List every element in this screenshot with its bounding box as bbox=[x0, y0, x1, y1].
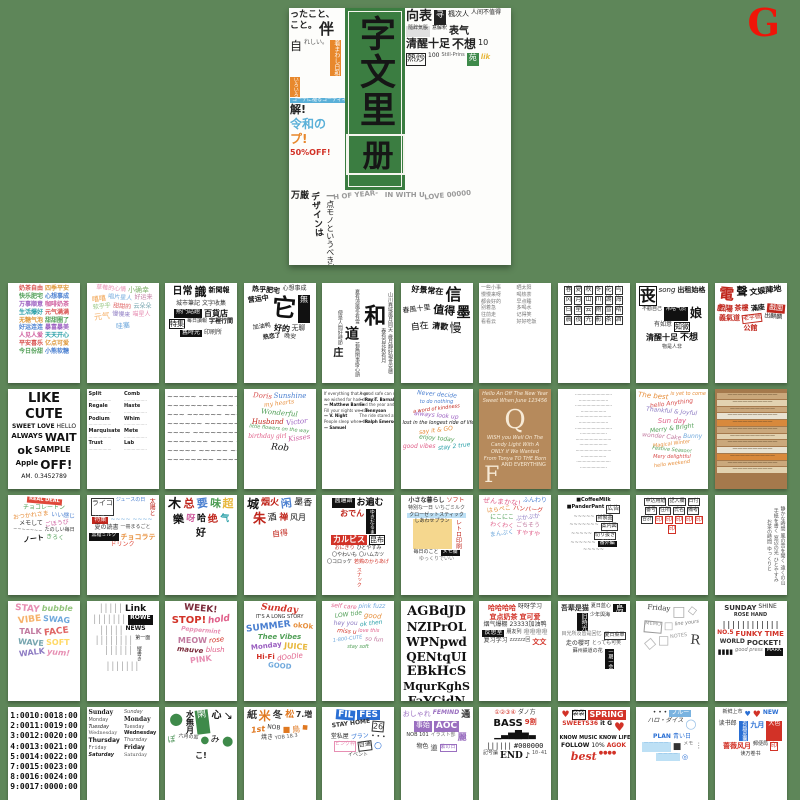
sticker-sheet-2-pastel-phrase-scatter: 草莓的心情小确幸嘻嘻唱片星人好运来软乎乎甜甜的云朵朵元气慢慢来喵星人哇塞 bbox=[87, 283, 159, 383]
text-fragment: POCKET! bbox=[747, 639, 781, 647]
sticker-sheet-5-vertical-script-calligraphy: 山川異域風月同天歲月靜好現世安穩和春有百花秋有月夏有涼風冬有雪道若無閑事掛心頭便… bbox=[322, 283, 394, 383]
text-fragment: デザインは bbox=[308, 192, 326, 265]
text-fragment: People sleep when the bbox=[324, 420, 357, 425]
sticker-sheet-13-cursive-scribble-rows: ~~~~~ ~~~~~~~ ~~~~~~~~~~~~ ~~~ ~~~~~~~~ … bbox=[165, 389, 237, 489]
text-fragment: 自 bbox=[290, 40, 302, 76]
text-fragment: FUNKY TIME bbox=[736, 630, 784, 638]
cover-collage-left: ったこと、こと。伴自れしい。着まわし日和いろいろコーデに褪るコーディネートを自由… bbox=[289, 8, 345, 190]
text-fragment: ーーーー bbox=[656, 753, 680, 761]
text-fragment: 記号論 bbox=[483, 751, 498, 761]
text-fragment: ゆっくりでいい bbox=[419, 557, 454, 563]
text-fragment: ····························· bbox=[560, 393, 628, 398]
text-fragment: 禅 bbox=[278, 512, 288, 528]
text-fragment: 川 bbox=[595, 296, 603, 305]
text-fragment: 人间不值得 bbox=[471, 10, 501, 25]
sticker-sheet-18-tiny-centered-lines: ········································… bbox=[558, 389, 630, 489]
text-fragment: —————————— bbox=[717, 393, 787, 399]
text-fragment: ······················· bbox=[560, 421, 628, 426]
text-fragment: 风月 bbox=[290, 513, 306, 528]
text-fragment: れしい。 bbox=[304, 40, 328, 76]
text-fragment: ~~~~~~ bbox=[570, 541, 595, 547]
text-fragment: ゆきだるま bbox=[366, 509, 376, 534]
text-fragment: VIBE bbox=[17, 614, 41, 627]
sticker-sheet-1-rainbow-word-grid: 奶茶自由四季平安快乐肥宅心想事成万事顺意咖啡奶茶生活爆好元气满满无糖气泡甜甜圈了… bbox=[8, 283, 80, 383]
text-fragment: 朱 bbox=[253, 513, 266, 528]
text-fragment: Wonderful bbox=[261, 407, 298, 418]
text-fragment: — Ralph Emerson bbox=[360, 420, 393, 425]
text-fragment: 風の音を聞く bbox=[779, 533, 785, 563]
text-fragment: ···························· bbox=[560, 449, 628, 454]
text-fragment: WPNpwd bbox=[403, 636, 471, 650]
text-fragment: ピンク枠 bbox=[334, 741, 356, 751]
sticker-sheet-48-red-spring-collage: ♥袋袋SPRINGSWEETS36it G♥KNOW MUSIC KNOW LI… bbox=[558, 707, 630, 800]
text-fragment: きろく bbox=[46, 534, 65, 544]
text-fragment: 〇コロッケ bbox=[327, 560, 352, 566]
text-fragment: │││││ bbox=[99, 626, 123, 635]
text-fragment: ~~~~~~ ~~~~~~ ~~~ bbox=[167, 420, 235, 428]
text-fragment: ○ bbox=[685, 718, 696, 733]
text-fragment: 若鶏のからあげ bbox=[354, 560, 389, 566]
text-fragment: ーーーーー bbox=[642, 742, 671, 752]
sticker-sheet-36-serif-alphabet-collage: AGBdJDNZIPrOLWPNpwdQENtqUIEBkHcSMqurKghS… bbox=[401, 601, 473, 701]
product-photo: G ったこと、こと。伴自れしい。着まわし日和いろいろコーデに褪るコーディネートを… bbox=[0, 0, 800, 800]
text-fragment: 墨 bbox=[457, 305, 471, 321]
text-fragment: 申込用紙 bbox=[644, 498, 666, 506]
text-fragment: 1:0010:0018:00 bbox=[10, 711, 78, 720]
text-fragment: 庄 bbox=[330, 347, 342, 357]
text-fragment: 小熊软糖 bbox=[45, 349, 69, 356]
text-fragment: good press bbox=[735, 648, 763, 656]
text-fragment: AOC bbox=[434, 721, 459, 731]
text-fragment: ■PanderPant bbox=[567, 505, 604, 514]
text-fragment: |||||| bbox=[487, 742, 512, 750]
text-fragment: Saturday bbox=[89, 753, 122, 759]
text-fragment: 歲月靜好現世安穩 bbox=[386, 334, 392, 374]
sticker-sheet-14-colorful-signatures: DorisSunshinemy heartsWonderfulHusbandVi… bbox=[244, 389, 316, 489]
text-fragment: 雨 bbox=[595, 306, 603, 315]
text-fragment: ● bbox=[168, 709, 184, 734]
text-fragment: 宜点奶茶 bbox=[490, 613, 518, 621]
text-fragment: 走の櫻可 bbox=[566, 641, 590, 648]
text-fragment: レトロ印刷 bbox=[454, 519, 461, 549]
text-fragment: SWEETS36 bbox=[562, 721, 598, 735]
text-fragment: スナック bbox=[355, 567, 361, 587]
text-fragment: 松 bbox=[284, 710, 294, 725]
text-fragment: ││││││││ bbox=[95, 636, 134, 645]
text-fragment: 生活爆好 bbox=[19, 310, 43, 317]
text-fragment: Saturday bbox=[124, 753, 157, 759]
text-fragment: ~~~~~ ~~~~~ ~~~~~ bbox=[167, 447, 235, 455]
sticker-sheet-33-pink-bold-stickers: WEEK!STOP!holdPeppermintMEOWrosemauveblu… bbox=[165, 601, 237, 701]
text-fragment: FaYCidN bbox=[403, 695, 471, 701]
text-fragment: 娘 bbox=[690, 307, 702, 321]
text-fragment: 焼き bbox=[261, 735, 273, 742]
text-fragment: 袋袋 bbox=[572, 710, 586, 720]
text-fragment: メモ bbox=[683, 742, 693, 752]
text-fragment: 味 bbox=[209, 498, 221, 514]
text-fragment: so fun bbox=[364, 636, 383, 644]
sticker-sheet-37-cn-red-black-phrases: 哈哈哈哈呀呀学习宜点奶茶宜可爱烟气爆棚23333加油鸭反思室朋友列噔噔噔噔复习学… bbox=[479, 601, 551, 701]
text-fragment: 万厳 bbox=[291, 192, 309, 265]
sticker-sheet-20-kraft-text-strips: ————————————————————————————————————————… bbox=[715, 389, 787, 489]
sticker-sheet-47-bw-red-bass-collage: ①②③④ダノ方BASS9割▁▃▅▇▅▃||||||#000000記号論END♪1… bbox=[479, 707, 551, 800]
text-fragment: NEW bbox=[763, 710, 779, 720]
text-fragment: 日 bbox=[564, 306, 572, 315]
text-fragment: 宜可爱 bbox=[520, 613, 541, 621]
text-fragment: SOFT bbox=[46, 638, 69, 647]
sticker-sheet-40-bw-red-ephemera: SUNDAYSHINEROSE HAND||||||||||||NO.5FUNK… bbox=[715, 601, 787, 701]
text-fragment: チョコラテ bbox=[121, 533, 156, 541]
text-fragment: 不想 bbox=[452, 38, 476, 52]
text-fragment: 海 bbox=[615, 296, 623, 305]
sticker-sheet-7-tiny-gray-list: 一些小事慢慢来呀都会好的别着急往前走看看云晒太阳喝热茶早点睡多喝水记得笑好好吃饭 bbox=[479, 283, 551, 383]
text-fragment: Apple bbox=[16, 459, 39, 473]
text-fragment: 气 bbox=[219, 514, 229, 527]
text-fragment: 遠くの山 bbox=[779, 565, 785, 585]
text-fragment: 便是人間好時節 bbox=[330, 310, 342, 345]
cover-title-last-char: 册 bbox=[346, 134, 405, 175]
text-fragment: AGBdJD bbox=[403, 605, 471, 620]
sticker-sheet-46-purple-jp-collage: おしゃれFEMIND通事始AOCNOB 101イラスト部麗物色道紫の日 bbox=[401, 707, 473, 800]
text-fragment: 快乐肥宅 bbox=[19, 294, 43, 301]
text-fragment: しあわせプラン bbox=[413, 519, 452, 549]
text-fragment: ハロ・ダイス bbox=[647, 718, 683, 733]
sticker-sheet-29-forms-and-stamps: 申込用紙記入欄日付番号住所氏名備考合計印印印印印印 bbox=[636, 495, 708, 595]
text-fragment: 麗 bbox=[458, 733, 467, 743]
text-fragment: 晨 bbox=[564, 316, 572, 325]
text-fragment: 窓辺の光 bbox=[772, 535, 778, 555]
sheet-grid: 奶茶自由四季平安快乐肥宅心想事成万事顺意咖啡奶茶生活爆好元气满满无糖气泡甜甜圈了… bbox=[8, 283, 787, 800]
text-fragment: 吾辈是猫 bbox=[561, 604, 589, 612]
text-fragment: 山 bbox=[584, 296, 592, 305]
text-fragment: If everything that ever bbox=[324, 392, 357, 397]
text-fragment: AND EVERYTHING bbox=[501, 463, 545, 488]
text-fragment: ———————— bbox=[717, 420, 787, 426]
text-fragment: 住所 bbox=[659, 507, 671, 515]
text-fragment: FACE bbox=[43, 625, 69, 638]
text-fragment: stay 2 true bbox=[437, 442, 470, 453]
text-fragment: 星 bbox=[574, 306, 582, 315]
text-fragment: WAIT bbox=[45, 432, 77, 445]
text-fragment: —————————— bbox=[717, 427, 787, 433]
text-fragment: 戲陽 bbox=[716, 304, 733, 315]
text-fragment: 它 bbox=[271, 294, 297, 324]
sticker-sheet-44-orange-jp-collage: 紙米冬松7.増1stNOB■鳥■焼きYOB 18.3 bbox=[244, 707, 316, 800]
text-fragment: □ bbox=[672, 604, 685, 620]
text-fragment: Mete bbox=[124, 429, 157, 435]
text-fragment: 字裡行間 bbox=[209, 319, 233, 329]
text-fragment: 烏 bbox=[613, 604, 626, 612]
text-fragment: Thursday bbox=[89, 738, 122, 745]
text-fragment: おしゃれ bbox=[403, 710, 431, 720]
text-fragment: 物是人非 bbox=[662, 345, 682, 351]
text-fragment: 烟气爆棚 bbox=[483, 622, 507, 629]
text-fragment: 四季平安 bbox=[45, 286, 69, 293]
text-fragment: 元气 bbox=[94, 311, 111, 322]
text-fragment: The best bbox=[638, 391, 669, 402]
sticker-sheet-41-clock-times-grid: 1:0010:0018:002:0011:0019:003:0012:0020:… bbox=[8, 707, 80, 800]
text-fragment: okOk bbox=[292, 621, 313, 633]
sticker-sheet-11-bold-english-words: LIKECUTESWEET LOVEHELLOALWAYSWAITokSAMPL… bbox=[8, 389, 80, 489]
text-fragment: ブルー bbox=[669, 710, 691, 717]
text-fragment: 夏の読書 bbox=[94, 525, 118, 532]
text-fragment: 自得 bbox=[271, 528, 288, 539]
text-fragment: 印 bbox=[770, 742, 778, 751]
text-fragment: 城市筆記 bbox=[176, 301, 200, 308]
text-fragment: 自在 bbox=[411, 321, 431, 337]
text-fragment: 一些小事 bbox=[481, 286, 514, 292]
text-fragment: ったこと、 bbox=[290, 10, 335, 20]
text-fragment: 自通 bbox=[357, 741, 372, 753]
sticker-sheet-26-jp-highlighted-text: 小さな暮らしソフト特別な一日いちごミルククローゼットスティックしあわせプランレト… bbox=[401, 495, 473, 595]
text-fragment: lik bbox=[481, 53, 490, 65]
text-fragment: 楓次人 bbox=[448, 10, 469, 25]
text-fragment: 冬 bbox=[595, 286, 603, 295]
text-fragment: 太陽と bbox=[147, 498, 154, 516]
text-fragment: 印 bbox=[685, 516, 693, 525]
text-fragment: 元气满满 bbox=[45, 310, 69, 317]
text-fragment: 4:0013:0021:00 bbox=[10, 742, 78, 751]
text-fragment: 信 bbox=[445, 286, 461, 304]
text-fragment: ~~~~ ~~~~ bbox=[110, 517, 152, 524]
text-fragment: 事始 bbox=[414, 721, 432, 731]
text-fragment: ·················· bbox=[124, 448, 157, 453]
text-fragment: 城 bbox=[246, 498, 259, 513]
text-fragment: FOLLOW bbox=[561, 743, 589, 750]
text-fragment: 光 bbox=[584, 316, 592, 325]
text-fragment: 7.増 bbox=[296, 710, 313, 724]
sticker-sheet-24-brush-kanji-red-black: 城烟火闲墨香朱酒禅风月自得 bbox=[244, 495, 316, 595]
text-fragment: 喝热茶 bbox=[517, 293, 550, 299]
text-fragment: 向表 bbox=[406, 10, 432, 25]
text-fragment: 月 bbox=[574, 296, 582, 305]
text-fragment: イベント bbox=[348, 753, 368, 759]
text-fragment: 印 bbox=[675, 516, 683, 525]
text-fragment: ︙ bbox=[695, 742, 702, 752]
sticker-sheet-42-weekday-words: SundayMondayTuesdayWednesdayThursdayFrid… bbox=[87, 707, 159, 800]
text-fragment: EBkHcS bbox=[403, 665, 471, 680]
text-fragment: Doris bbox=[252, 391, 272, 401]
text-fragment: Friday bbox=[89, 746, 122, 752]
text-fragment: │││││││ bbox=[106, 662, 140, 671]
text-fragment: 朋友列 bbox=[506, 630, 521, 637]
text-fragment: CUTE bbox=[25, 408, 63, 423]
text-fragment: 特集 bbox=[92, 517, 108, 524]
text-fragment: 氏名 bbox=[673, 507, 685, 515]
text-fragment: dOoDle bbox=[276, 651, 303, 662]
text-fragment: ~~~~~~~ bbox=[569, 523, 598, 531]
text-fragment: QENtqUI bbox=[403, 651, 471, 665]
text-fragment: 哈 bbox=[197, 514, 206, 527]
text-fragment: Monday bbox=[124, 717, 157, 724]
sticker-sheet-8-stamp-character-grid: 春夏秋冬花鸟风月山川湖海日星云雨雪晴晨夜光影茶酒 bbox=[558, 283, 630, 383]
text-fragment: SAMPLE bbox=[34, 445, 70, 458]
text-fragment: 茶 bbox=[605, 316, 613, 325]
text-fragment: BASS bbox=[493, 718, 522, 730]
text-fragment: 一期一会 bbox=[605, 649, 615, 669]
sticker-sheet-6-brush-calligraphy-scatter: 好景常在信春風十里值得墨自在清歡慢 bbox=[401, 283, 473, 383]
text-fragment: 電 bbox=[719, 285, 735, 303]
text-fragment: 晴 bbox=[615, 306, 623, 315]
sticker-sheet-12-dictionary-entries: Split··················Regale···········… bbox=[87, 389, 159, 489]
text-fragment: おでん bbox=[340, 509, 364, 534]
sticker-sheet-4-bw-type-collage: 热乎肥宅心想事成营运中它無加油鸭好的无聊热恋了晚安 bbox=[244, 283, 316, 383]
text-fragment: ▁▃▅▇▅▃ bbox=[494, 730, 536, 740]
text-fragment: 不勸自己 bbox=[642, 307, 662, 321]
text-fragment: R bbox=[690, 633, 701, 652]
text-fragment: PLAN bbox=[653, 734, 671, 741]
text-fragment: 記入欄 bbox=[668, 498, 685, 506]
text-fragment: 隨辞気脹 bbox=[406, 26, 430, 38]
text-fragment: 5:0014:0022:00 bbox=[10, 752, 78, 761]
text-fragment: 热恋了 bbox=[263, 333, 282, 342]
sticker-sheet-25-retro-food-labels: 圆遍語お遍むおでんゆきだるまカルビス昆布おにぎりひとやすみ〇やわいも〇ハムカツ〇… bbox=[322, 495, 394, 595]
text-fragment: 道 bbox=[431, 744, 438, 752]
text-fragment: 黒糖ミルク bbox=[89, 533, 118, 541]
text-fragment: 新製品 bbox=[596, 515, 613, 523]
text-fragment: ↘ bbox=[223, 710, 232, 734]
text-fragment: HELLO bbox=[57, 424, 77, 431]
sticker-sheet-27-pink-doodle-phrases: ぜんまかな!ふんわりはらぺこハンバーグにこにこぷかぷかわくわくごちそうまんぷくす… bbox=[479, 495, 551, 595]
text-fragment: 花 bbox=[605, 286, 613, 295]
text-fragment: best bbox=[571, 751, 597, 764]
text-fragment: 若無閑事掛心頭 bbox=[343, 342, 359, 377]
sticker-sheet-43-green-jp-collage: ●水無月閑心↘ぽ六月の窓●み●こ! bbox=[165, 707, 237, 800]
text-fragment: 青い日 bbox=[673, 734, 691, 741]
text-fragment: Rob bbox=[270, 442, 289, 454]
text-fragment: ———————— bbox=[717, 447, 787, 453]
text-fragment: 公館 bbox=[744, 324, 758, 332]
text-fragment: ~~~~~ bbox=[583, 548, 604, 554]
text-fragment: F bbox=[484, 463, 499, 488]
text-fragment: ·················· bbox=[89, 411, 122, 416]
text-fragment: 六月の窓 bbox=[178, 734, 199, 751]
text-fragment: 冬 bbox=[272, 709, 284, 724]
text-fragment: AGOK bbox=[607, 743, 626, 750]
text-fragment: 蘇州鉄道の花 bbox=[573, 649, 603, 669]
text-fragment: ■ bbox=[302, 725, 308, 735]
text-fragment: ぽ bbox=[168, 735, 178, 751]
text-fragment: ● bbox=[222, 735, 235, 751]
sticker-sheet-17-parchment-initials: Hello An Off The New YearSweet When June… bbox=[479, 389, 551, 489]
text-fragment: いちごミルク bbox=[435, 506, 465, 512]
text-fragment: H OF YEAR- bbox=[333, 190, 386, 265]
cover-title-band: 字文里 册 bbox=[345, 8, 405, 190]
text-fragment: SHINE bbox=[758, 604, 776, 612]
text-fragment: み bbox=[210, 735, 221, 751]
text-fragment: 物色 bbox=[416, 744, 428, 752]
text-fragment: 苑 bbox=[467, 53, 479, 65]
text-fragment: 特別な一日 bbox=[408, 506, 433, 512]
text-fragment: 熱炒 bbox=[406, 53, 426, 65]
sticker-sheet-32-bw-newspaper-strips: │││││Link│││││││ROWE│││││NEWS││││││││第一面… bbox=[87, 601, 159, 701]
text-fragment: 7:0015:0023:00 bbox=[10, 762, 78, 771]
text-fragment: ·················· bbox=[89, 448, 122, 453]
text-fragment: Victor bbox=[285, 417, 307, 428]
sticker-sheet-30-sparse-vertical-columns: 静かな時間風の音を聞く遠くの山手紙を書く窓辺の光ひとやすみお茶の時間ゆっくりと bbox=[715, 495, 787, 595]
text-fragment: 酒 bbox=[615, 316, 623, 325]
text-fragment: 26 bbox=[372, 721, 385, 733]
text-fragment: JUICE bbox=[284, 641, 309, 652]
text-fragment: WORLD bbox=[720, 639, 745, 647]
text-fragment: AM. 0.3452789 bbox=[21, 474, 67, 481]
text-fragment: ◇ bbox=[643, 633, 657, 652]
text-fragment: ONLY if We Wanted bbox=[491, 450, 539, 456]
text-fragment: 番号 bbox=[645, 507, 657, 515]
text-fragment: ROSE HAND bbox=[734, 613, 767, 619]
text-fragment: 木 bbox=[168, 497, 182, 513]
text-fragment: 紙 bbox=[246, 710, 257, 725]
text-fragment: ———————— bbox=[717, 400, 787, 406]
text-fragment: 有如意 bbox=[654, 322, 672, 332]
text-fragment: □ bbox=[664, 621, 673, 633]
text-fragment: 绝 bbox=[207, 513, 218, 527]
text-fragment: 一冊まるごと bbox=[121, 525, 151, 532]
text-fragment: NOTES bbox=[670, 633, 689, 653]
text-fragment: blush bbox=[206, 646, 225, 654]
text-fragment: 樂 bbox=[172, 513, 184, 527]
text-fragment: 云朵朵 bbox=[134, 304, 152, 311]
text-fragment: 義氣道 bbox=[719, 314, 740, 323]
sticker-sheet-38-cn-bw-banners: 吾辈是猫夏日蓝心烏旧時光少年與海目光所及皆是回忆夏日菜單走の櫻可とっても可笑蘇州… bbox=[558, 601, 630, 701]
text-fragment: 夜 bbox=[574, 316, 582, 325]
text-fragment: ◎ bbox=[682, 753, 688, 761]
text-fragment: ○ bbox=[374, 741, 383, 752]
text-fragment: 出麒麟 bbox=[764, 314, 783, 324]
text-fragment: 好好吃饭 bbox=[517, 320, 550, 326]
text-fragment: 酒 bbox=[267, 512, 278, 528]
text-fragment: good vibes bbox=[403, 444, 436, 451]
text-fragment: 记得笑 bbox=[517, 313, 550, 319]
text-fragment: 咖啡奶茶 bbox=[45, 302, 69, 309]
sticker-sheet-23-colorful-kanji-scatter: 木总要味超樂呀哈绝气好 bbox=[165, 495, 237, 595]
text-fragment: 加油鸭 bbox=[253, 323, 272, 334]
sticker-sheet-39-journal-line-frames: Friday□◇MEMO□line yours◇□NOTESR bbox=[636, 601, 708, 701]
text-fragment: 9:0017:0000:00 bbox=[10, 782, 78, 791]
text-fragment: ———————— bbox=[717, 467, 787, 473]
text-fragment: 鸟 bbox=[615, 286, 623, 295]
text-fragment: 晚安 bbox=[283, 333, 296, 341]
text-fragment: 风 bbox=[564, 296, 572, 305]
sticker-sheet-3-bw-newsprint-dense: 日常識新聞報城市筆記文字收集熱門話題百貨店特集每日讀報字裡行間舊時光印刷所 bbox=[165, 283, 237, 383]
text-fragment: Comb bbox=[124, 392, 157, 398]
sticker-sheet-16-colorful-quotes: Never decideto do nothinga word of kindn… bbox=[401, 389, 473, 489]
text-fragment: 旧時光 bbox=[577, 613, 588, 631]
text-fragment: Sunday bbox=[89, 710, 122, 717]
text-fragment: MEMO bbox=[644, 620, 663, 633]
sticker-sheet-31-pastel-graffiti-words: STAYbubbleVIBESWAGTALKFACEWAVESOFTWALKyu… bbox=[8, 601, 80, 701]
text-fragment: 縦書き bbox=[135, 646, 141, 661]
text-fragment: song bbox=[659, 286, 676, 306]
text-fragment: 識 bbox=[194, 286, 206, 300]
text-fragment: 50%OFF! bbox=[290, 148, 331, 157]
text-fragment: IN WITH U bbox=[385, 192, 425, 265]
text-fragment: Hi-Fi bbox=[256, 653, 274, 661]
text-fragment: 九月 bbox=[750, 721, 764, 741]
text-fragment: ■CoffeeMilk bbox=[576, 498, 610, 504]
text-fragment: Marquisate bbox=[89, 429, 122, 435]
text-fragment: ▮▮▮▮ bbox=[718, 648, 733, 656]
text-fragment: 秋 bbox=[584, 286, 592, 295]
text-fragment: ソフト bbox=[447, 498, 465, 505]
text-fragment: MARK bbox=[765, 648, 784, 656]
text-fragment: 23333加油鸭 bbox=[509, 622, 546, 629]
text-fragment: 无聊 bbox=[292, 324, 306, 333]
text-fragment: 令和の bbox=[290, 118, 326, 132]
text-fragment: お遍む bbox=[357, 498, 384, 508]
text-fragment: ♥ bbox=[753, 710, 761, 720]
text-fragment: ライコ bbox=[91, 498, 114, 516]
